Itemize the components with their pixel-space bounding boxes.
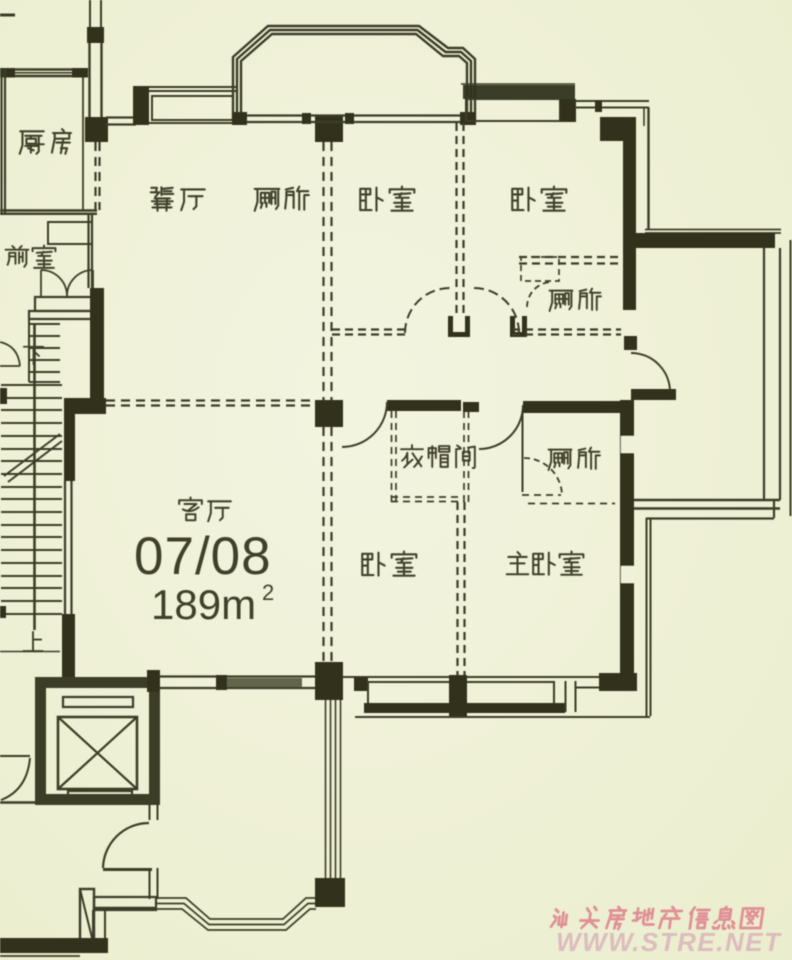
svg-text:07/08: 07/08 [134, 527, 272, 586]
svg-text:2: 2 [262, 580, 274, 605]
svg-text:WWW.STRE.NET: WWW.STRE.NET [556, 927, 782, 957]
svg-text:189m: 189m [151, 581, 256, 628]
